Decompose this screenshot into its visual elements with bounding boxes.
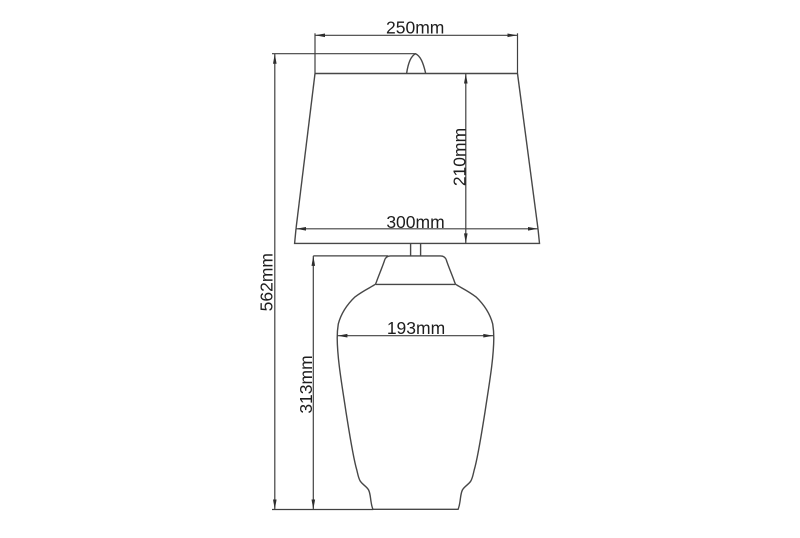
svg-text:193mm: 193mm [387, 318, 445, 338]
svg-text:562mm: 562mm [256, 253, 276, 311]
svg-text:300mm: 300mm [386, 212, 444, 232]
svg-text:210mm: 210mm [449, 128, 469, 186]
svg-text:313mm: 313mm [296, 355, 316, 413]
svg-text:250mm: 250mm [386, 18, 444, 38]
